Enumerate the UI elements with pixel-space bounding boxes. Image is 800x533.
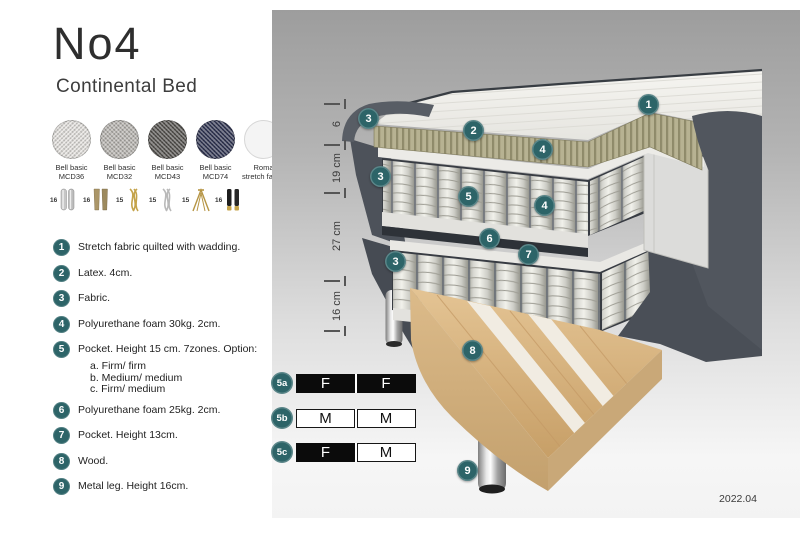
leg-option: 15 bbox=[182, 187, 212, 213]
fabric-swatch: Bell basicMCD43 bbox=[146, 120, 189, 182]
leg-hairpin-icon bbox=[191, 187, 211, 213]
firmness-bar: F M bbox=[296, 443, 416, 462]
dimension-label-19cm: 19 cm bbox=[331, 138, 345, 198]
fabric-swatch: Bell basicMCD36 bbox=[50, 120, 93, 182]
product-title: No4 bbox=[53, 18, 142, 70]
firmness-row-5a: 5a F F bbox=[271, 372, 416, 394]
spec-number-badge: 6 bbox=[53, 402, 70, 419]
spec-item-2: 2 Latex. 4cm. bbox=[53, 265, 271, 282]
spec-item-3: 3 Fabric. bbox=[53, 290, 271, 307]
spec-text: Polyurethane foam 30kg. 2cm. bbox=[78, 316, 220, 331]
firmness-badge-5c: 5c bbox=[271, 441, 293, 463]
fabric-swatch: Bell basicMCD32 bbox=[98, 120, 141, 182]
dimension-tick bbox=[344, 188, 346, 198]
leg-height-label: 16 bbox=[83, 197, 90, 204]
leg-option: 16 bbox=[50, 187, 80, 213]
dimension-label-16cm: 16 cm bbox=[331, 276, 345, 336]
spec-text: Stretch fabric quilted with wadding. bbox=[78, 239, 240, 254]
leg-cylinder-black-gold-icon bbox=[224, 187, 242, 213]
fabric-swatch-circle bbox=[148, 120, 187, 159]
callout-badge-4: 4 bbox=[532, 139, 553, 160]
spec-item-8: 8 Wood. bbox=[53, 453, 271, 470]
spec-item-5-options: a. Firm/ firm b. Medium/ medium c. Firm/… bbox=[90, 361, 271, 396]
spec-number-badge: 3 bbox=[53, 290, 70, 307]
leg-option: 15 bbox=[116, 187, 146, 213]
leg-height-label: 15 bbox=[182, 197, 189, 204]
firmness-cell: F bbox=[357, 374, 416, 393]
spec-text: Latex. 4cm. bbox=[78, 265, 132, 280]
firmness-badge-5b: 5b bbox=[271, 407, 293, 429]
spec-item-1: 1 Stretch fabric quilted with wadding. bbox=[53, 239, 271, 256]
fabric-swatch-circle bbox=[100, 120, 139, 159]
spec-number-badge: 8 bbox=[53, 453, 70, 470]
callout-badge-1: 1 bbox=[638, 94, 659, 115]
dimension-label-27cm: 27 cm bbox=[331, 206, 345, 266]
leg-cylinder-chrome-icon bbox=[59, 187, 77, 213]
firmness-cell: M bbox=[357, 443, 416, 462]
leg-twist-gold-icon bbox=[125, 187, 143, 213]
callout-badge-8: 8 bbox=[462, 340, 483, 361]
firmness-cell: M bbox=[296, 409, 355, 428]
spec-text: Polyurethane foam 25kg. 2cm. bbox=[78, 402, 220, 417]
leg-option: 15 bbox=[149, 187, 179, 213]
callout-badge-2: 2 bbox=[463, 120, 484, 141]
firmness-bar: F F bbox=[296, 374, 416, 393]
spec-text: Pocket. Height 15 cm. 7zones. Option: bbox=[78, 341, 257, 356]
page-root: No4 Continental Bed Bell basicMCD36 Bell… bbox=[0, 0, 800, 533]
leg-height-label: 16 bbox=[215, 197, 222, 204]
spec-number-badge: 4 bbox=[53, 316, 70, 333]
leg-twist-silver-icon bbox=[158, 187, 176, 213]
spec-list: 1 Stretch fabric quilted with wadding. 2… bbox=[53, 239, 271, 504]
callout-badge-3: 3 bbox=[370, 166, 391, 187]
fabric-swatch-row: Bell basicMCD36 Bell basicMCD32 Bell bas… bbox=[50, 120, 285, 182]
leg-option: 16 bbox=[83, 187, 113, 213]
firmness-cell: F bbox=[296, 374, 355, 393]
dimension-tick bbox=[344, 326, 346, 336]
spec-text: Pocket. Height 13cm. bbox=[78, 427, 178, 442]
fabric-swatch-label: Bell basicMCD36 bbox=[55, 163, 87, 182]
dimension-tick bbox=[324, 192, 340, 194]
spec-number-badge: 2 bbox=[53, 265, 70, 282]
spec-item-9: 9 Metal leg. Height 16cm. bbox=[53, 478, 271, 495]
leg-block-wood-icon bbox=[92, 187, 110, 213]
firmness-row-5b: 5b M M bbox=[271, 407, 416, 429]
firmness-cell: M bbox=[357, 409, 416, 428]
leg-height-label: 16 bbox=[50, 197, 57, 204]
callout-badge-7: 7 bbox=[518, 244, 539, 265]
fabric-swatch-label: Bell basicMCD74 bbox=[199, 163, 231, 182]
pocket-option-c: c. Firm/ medium bbox=[90, 384, 271, 396]
callout-badge-5: 5 bbox=[458, 186, 479, 207]
firmness-badge-5a: 5a bbox=[271, 372, 293, 394]
leg-height-label: 15 bbox=[116, 197, 123, 204]
callout-badge-3: 3 bbox=[358, 108, 379, 129]
firmness-cell: F bbox=[296, 443, 355, 462]
spec-text: Wood. bbox=[78, 453, 108, 468]
fabric-swatch-circle bbox=[52, 120, 91, 159]
version-label: 2022.04 bbox=[697, 493, 757, 505]
leg-options-row: 16 16 15 15 bbox=[50, 187, 245, 213]
spec-number-badge: 1 bbox=[53, 239, 70, 256]
firmness-bar: M M bbox=[296, 409, 416, 428]
fabric-swatch: Bell basicMCD74 bbox=[194, 120, 237, 182]
spec-item-6: 6 Polyurethane foam 25kg. 2cm. bbox=[53, 402, 271, 419]
firmness-row-5c: 5c F M bbox=[271, 441, 416, 463]
fabric-swatch-label: Bell basicMCD43 bbox=[151, 163, 183, 182]
callout-badge-3: 3 bbox=[385, 251, 406, 272]
spec-number-badge: 9 bbox=[53, 478, 70, 495]
spec-text: Metal leg. Height 16cm. bbox=[78, 478, 188, 493]
spec-item-7: 7 Pocket. Height 13cm. bbox=[53, 427, 271, 444]
callout-badge-9: 9 bbox=[457, 460, 478, 481]
leg-option: 16 bbox=[215, 187, 245, 213]
product-subtitle: Continental Bed bbox=[56, 76, 197, 98]
spec-number-badge: 7 bbox=[53, 427, 70, 444]
spec-number-badge: 5 bbox=[53, 341, 70, 358]
spec-text: Fabric. bbox=[78, 290, 110, 305]
dimension-tick bbox=[324, 330, 340, 332]
leg-height-label: 15 bbox=[149, 197, 156, 204]
callout-badge-4: 4 bbox=[534, 195, 555, 216]
callout-badge-6: 6 bbox=[479, 228, 500, 249]
fabric-swatch-label: Bell basicMCD32 bbox=[103, 163, 135, 182]
pocket-option-a: a. Firm/ firm bbox=[90, 361, 271, 373]
fabric-swatch-circle bbox=[196, 120, 235, 159]
spec-item-4: 4 Polyurethane foam 30kg. 2cm. bbox=[53, 316, 271, 333]
spec-item-5: 5 Pocket. Height 15 cm. 7zones. Option: bbox=[53, 341, 271, 358]
